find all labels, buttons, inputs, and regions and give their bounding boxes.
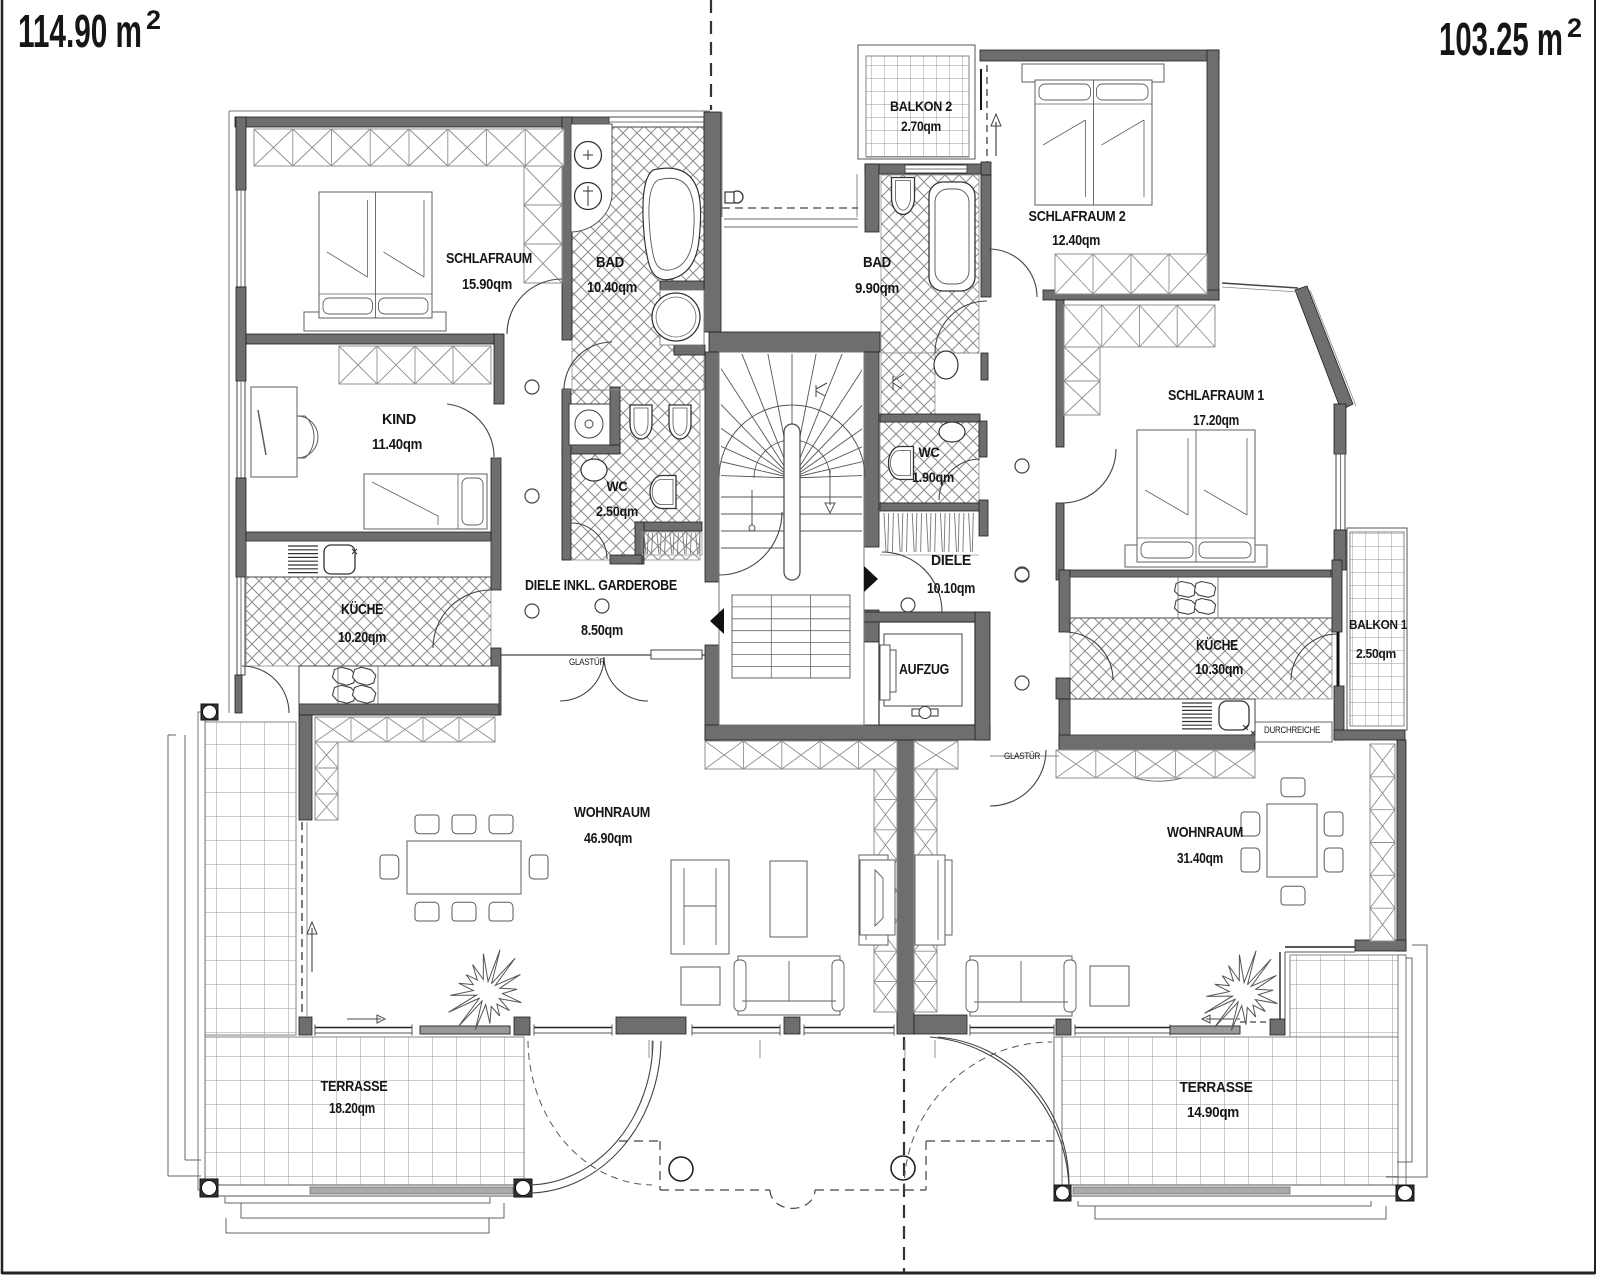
svg-text:TERRASSE: TERRASSE [321,1078,388,1095]
svg-text:2: 2 [146,5,161,35]
svg-text:103.25 m: 103.25 m [1439,13,1563,65]
svg-text:DIELE: DIELE [931,552,971,569]
svg-text:31.40qm: 31.40qm [1177,850,1223,867]
svg-text:10.30qm: 10.30qm [1195,661,1243,678]
svg-text:GLASTÜR: GLASTÜR [1004,751,1040,762]
svg-text:17.20qm: 17.20qm [1193,412,1239,429]
svg-text:15.90qm: 15.90qm [462,276,512,293]
svg-text:2.70qm: 2.70qm [901,118,941,134]
svg-text:DIELE INKL. GARDEROBE: DIELE INKL. GARDEROBE [525,577,677,594]
svg-text:KIND: KIND [382,411,416,428]
svg-text:KÜCHE: KÜCHE [341,601,383,618]
svg-text:2.50qm: 2.50qm [1356,646,1396,661]
svg-text:SCHLAFRAUM 2: SCHLAFRAUM 2 [1029,208,1126,225]
svg-text:BALKON 2: BALKON 2 [890,98,952,114]
svg-text:DURCHREICHE: DURCHREICHE [1264,725,1320,736]
svg-text:BAD: BAD [596,254,624,271]
svg-text:46.90qm: 46.90qm [584,830,632,847]
svg-text:WOHNRAUM: WOHNRAUM [574,804,650,821]
svg-text:8.50qm: 8.50qm [581,622,623,639]
svg-text:10.10qm: 10.10qm [927,580,975,597]
svg-text:BAD: BAD [863,254,891,271]
svg-text:WC: WC [607,478,628,494]
svg-text:114.90 m: 114.90 m [18,5,142,57]
svg-text:AUFZUG: AUFZUG [899,661,949,678]
svg-text:1.90qm: 1.90qm [912,469,954,485]
svg-text:SCHLAFRAUM: SCHLAFRAUM [446,250,532,267]
svg-text:WC: WC [919,444,940,460]
svg-text:2: 2 [1567,13,1582,43]
svg-text:2.50qm: 2.50qm [596,503,638,519]
svg-text:14.90qm: 14.90qm [1187,1104,1239,1121]
svg-text:WOHNRAUM: WOHNRAUM [1167,824,1243,841]
svg-text:10.20qm: 10.20qm [338,629,386,646]
svg-text:BALKON 1: BALKON 1 [1349,617,1407,632]
svg-text:GLASTÜR: GLASTÜR [569,657,605,668]
svg-text:SCHLAFRAUM 1: SCHLAFRAUM 1 [1168,387,1264,404]
svg-text:TERRASSE: TERRASSE [1180,1079,1253,1096]
svg-text:KÜCHE: KÜCHE [1196,637,1238,654]
svg-text:18.20qm: 18.20qm [329,1100,375,1117]
svg-text:12.40qm: 12.40qm [1052,232,1100,249]
svg-text:9.90qm: 9.90qm [855,280,899,297]
svg-text:10.40qm: 10.40qm [587,279,637,296]
svg-text:11.40qm: 11.40qm [372,436,422,453]
